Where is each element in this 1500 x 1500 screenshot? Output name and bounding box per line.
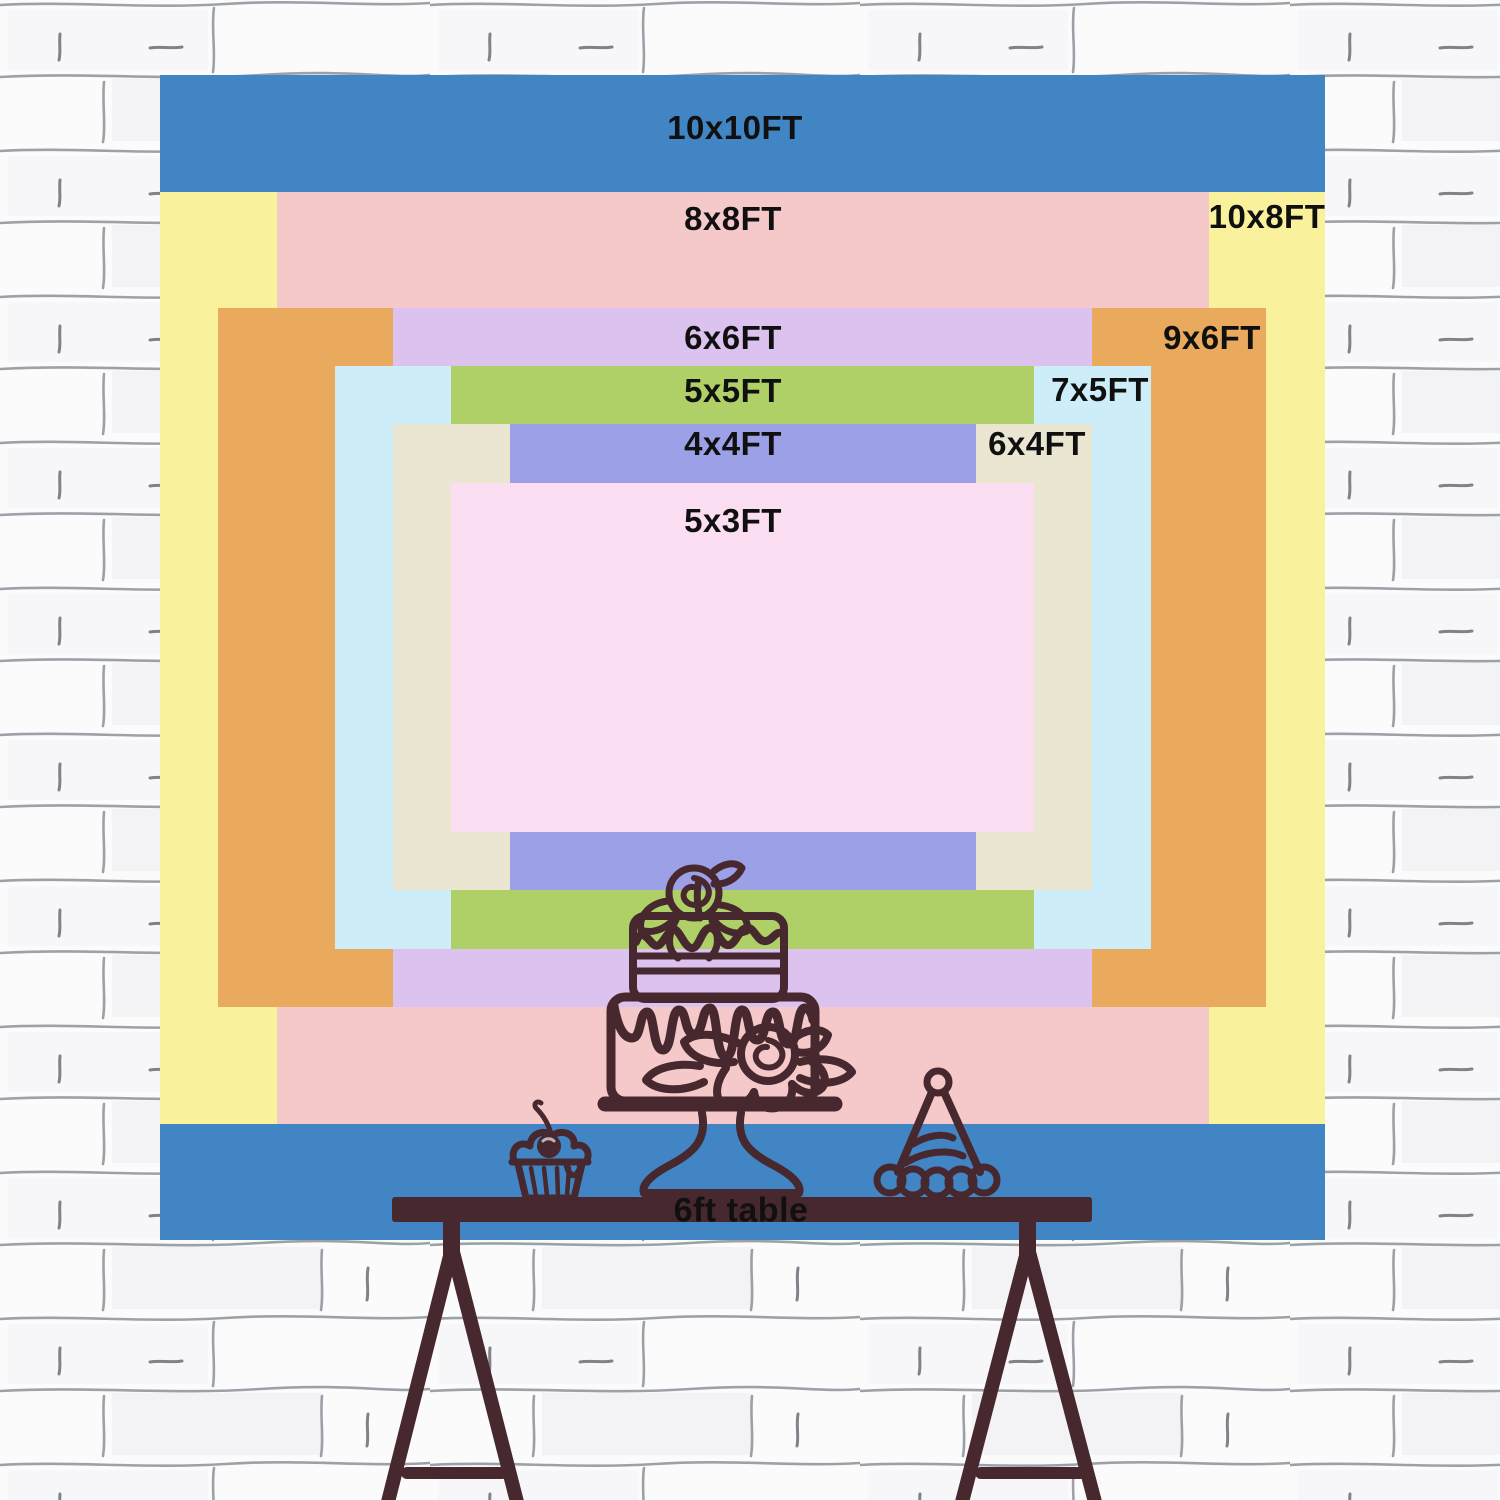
party-hat-drawing [877, 1071, 997, 1196]
cupcake-drawing [512, 1102, 588, 1198]
table-size-label: 6ft table [674, 1192, 809, 1231]
table-scene-illustration [0, 0, 1500, 1500]
cake-drawing [605, 864, 852, 1193]
table-drawing [388, 1197, 1095, 1500]
backdrop-size-chart: 10x10FT 8x8FT 10x8FT 6x6FT 9x6FT 5x5FT 7… [0, 0, 1500, 1500]
